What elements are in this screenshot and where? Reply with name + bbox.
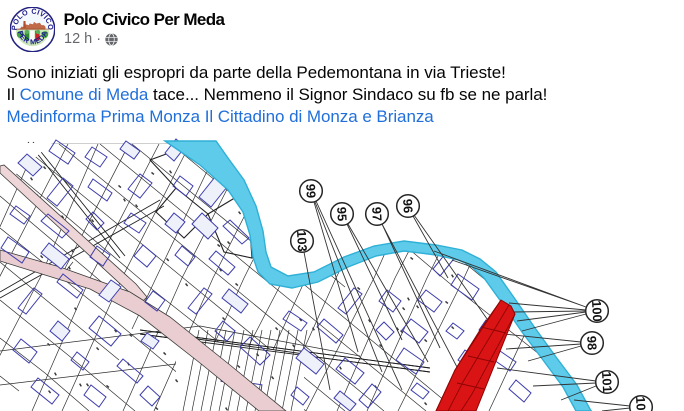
svg-text:99: 99	[303, 184, 319, 199]
svg-text:103: 103	[294, 230, 310, 252]
svg-text:100: 100	[589, 300, 605, 322]
svg-text:98: 98	[584, 336, 600, 351]
svg-text:96: 96	[400, 199, 416, 214]
svg-text:97: 97	[369, 207, 385, 222]
svg-text:102: 102	[633, 396, 649, 411]
svg-text:95: 95	[334, 207, 350, 222]
svg-text:101: 101	[599, 371, 615, 393]
